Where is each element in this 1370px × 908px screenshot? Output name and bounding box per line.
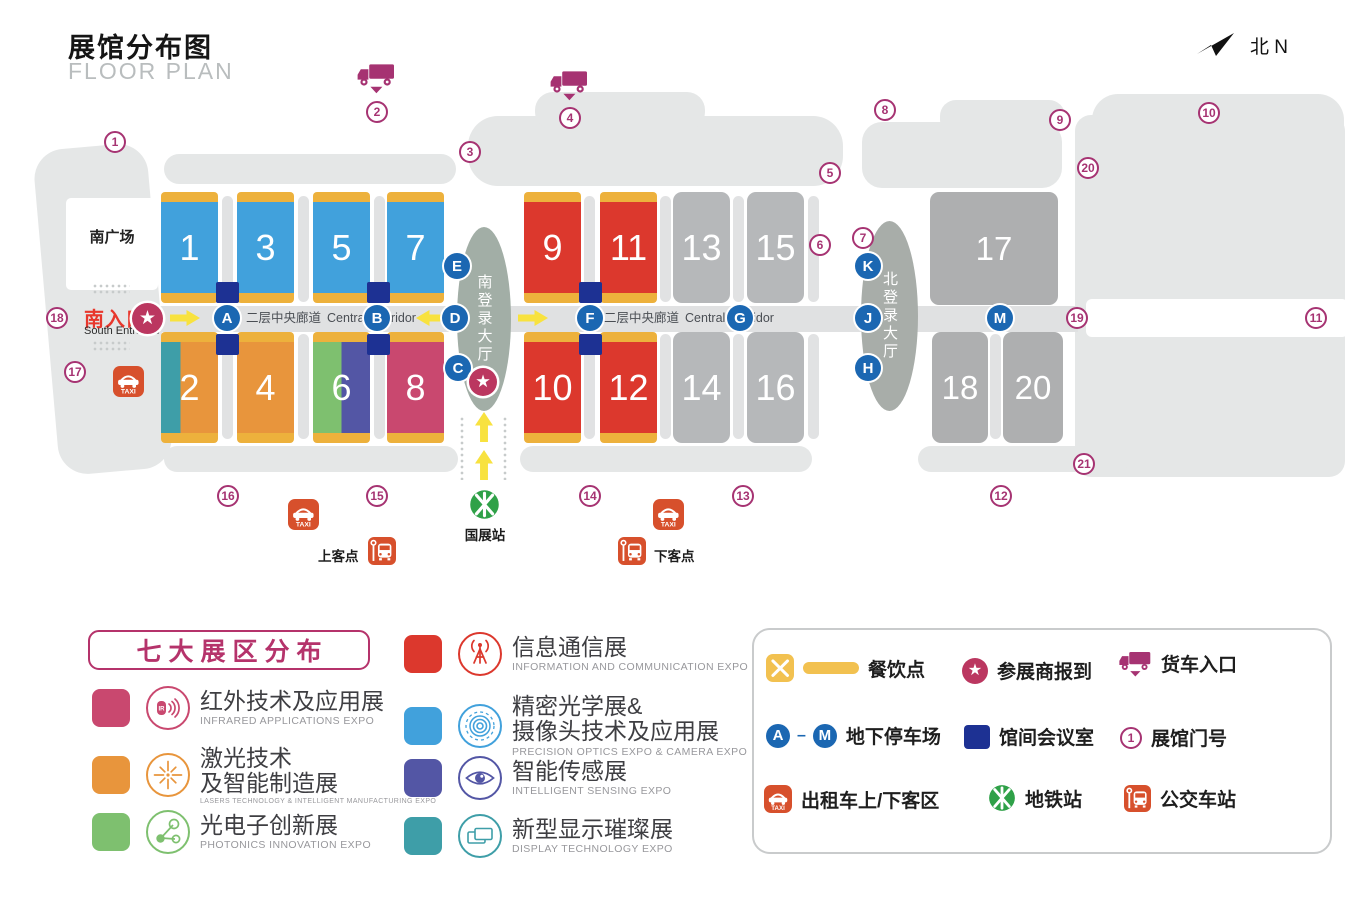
hall-2: 2	[161, 332, 218, 443]
parking-letter: B	[372, 310, 383, 327]
gate-number: 13	[736, 489, 749, 503]
parking-letter: G	[734, 310, 746, 327]
zone-legend-item-photonics: 光电子创新展 PHOTONICS INNOVATION EXPO	[92, 810, 371, 854]
parking-a-icon: A	[766, 724, 790, 748]
hall-14: 14	[673, 332, 730, 443]
dining-strip	[524, 433, 581, 443]
parking-letter: A	[222, 310, 233, 327]
facility-label: 公交车站	[1160, 785, 1236, 812]
zone-name-en: INFRARED APPLICATIONS EXPO	[200, 715, 384, 727]
zone-color-swatch	[92, 813, 130, 851]
gate-2: 2	[366, 101, 388, 123]
dining-strip	[313, 192, 370, 202]
gate-number-icon: 1	[1120, 727, 1142, 749]
hall-gap	[733, 334, 744, 439]
parking-point-D: D	[442, 305, 468, 331]
south-plaza: 南广场	[66, 198, 158, 290]
hall-3: 3	[237, 192, 294, 303]
meeting-room	[579, 334, 602, 355]
hall-gap	[298, 334, 309, 439]
parking-letter: E	[452, 258, 462, 275]
hall-11: 11	[600, 192, 657, 303]
parking-point-B: B	[364, 305, 390, 331]
gate-number: 3	[467, 145, 474, 159]
gate-4: 4	[559, 107, 581, 129]
dotted-path	[502, 416, 508, 480]
facility-legend-item-truck: 货车入口	[1118, 650, 1237, 678]
parking-letter: C	[453, 360, 464, 377]
zone-color-swatch	[404, 817, 442, 855]
hall-number: 14	[681, 367, 721, 409]
facility-label: 参展商报到	[997, 657, 1092, 684]
dining-strip	[387, 332, 444, 342]
zone-name-zh: 红外技术及应用展	[200, 689, 384, 714]
parking-point-C: C	[445, 355, 471, 381]
facility-legend-item-gate: 1展馆门号	[1120, 724, 1227, 751]
gate-number: 6	[817, 238, 824, 252]
dropoff-bus-icon	[618, 537, 646, 565]
gate-20: 20	[1077, 157, 1099, 179]
route-arrow	[518, 310, 548, 326]
metro-icon	[988, 784, 1016, 812]
hall-number: 2	[179, 367, 199, 409]
zone-legend-item-optics: 精密光学展& 摄像头技术及应用展 PRECISION OPTICS EXPO &…	[404, 694, 747, 758]
gate-number: 4	[567, 111, 574, 125]
roof-blob	[940, 100, 1065, 136]
parking-point-M: M	[987, 305, 1013, 331]
zone-name-en: INFORMATION AND COMMUNICATION EXPO	[512, 661, 748, 673]
checkin-star-icon: ★	[132, 303, 163, 334]
zone-legend-item-laser: 激光技术 及智能制造展 LASERS TECHNOLOGY & INTELLIG…	[92, 746, 436, 805]
facility-label: 馆间会议室	[999, 723, 1094, 750]
hall-1: 1	[161, 192, 218, 303]
zone-color-swatch	[92, 756, 130, 794]
metro-station-icon	[469, 489, 500, 520]
gate-number: 12	[994, 489, 1007, 503]
hall-number: 16	[755, 367, 795, 409]
hall-16: 16	[747, 332, 804, 443]
facility-label: 餐饮点	[868, 655, 925, 682]
gate-15: 15	[366, 485, 388, 507]
zone-name-en: INTELLIGENT SENSING EXPO	[512, 785, 671, 797]
corridor-label-zh: 二层中央廊道	[246, 311, 321, 325]
gate-5: 5	[819, 162, 841, 184]
facility-label: 展馆门号	[1151, 724, 1227, 751]
hall-number: 11	[610, 227, 647, 269]
taxi-icon: TAXI	[113, 366, 144, 397]
dining-strip	[524, 293, 581, 303]
taxi-icon: TAXI	[653, 499, 684, 530]
gate-6: 6	[809, 234, 831, 256]
parking-point-J: J	[855, 305, 881, 331]
taxi-icon: TAXI	[764, 785, 792, 813]
gate-17: 17	[64, 361, 86, 383]
gate-1: 1	[104, 131, 126, 153]
hall-gap	[660, 196, 671, 302]
gate-number: 21	[1077, 457, 1090, 471]
zone-color-swatch	[404, 707, 442, 745]
parking-point-A: A	[214, 305, 240, 331]
svg-text:TAXI: TAXI	[121, 389, 136, 395]
route-arrow-up	[475, 412, 493, 442]
pickup-bus-icon	[368, 537, 396, 565]
truck-entrance-icon	[549, 69, 589, 102]
dining-bar-swatch	[803, 662, 859, 674]
hall-15: 15	[747, 192, 804, 303]
gate-10: 10	[1198, 102, 1220, 124]
floor-plan-page: 展馆分布图 FLOOR PLAN 北 N 南广场 1 2 3 4 5 6 7 8…	[0, 0, 1370, 908]
dining-strip	[161, 332, 218, 342]
display-icon	[458, 814, 502, 858]
taxi-icon: TAXI	[288, 499, 319, 530]
zone-name-en: LASERS TECHNOLOGY & INTELLIGENT MANUFACT…	[200, 798, 436, 805]
parking-letter: J	[864, 310, 872, 327]
bus-stop-icon	[368, 537, 396, 565]
facility-legend-item-bus: 公交车站	[1124, 785, 1236, 812]
corridor-label-zh: 二层中央廊道	[604, 311, 679, 325]
corridor-label-south: 二层中央廊道Central Corridor	[246, 305, 416, 331]
truck-entrance-icon	[356, 62, 396, 95]
hall-gap	[990, 334, 1001, 439]
gate-8: 8	[874, 99, 896, 121]
gate-number: 8	[882, 103, 889, 117]
gate-21: 21	[1073, 453, 1095, 475]
hall-number: 3	[255, 227, 275, 269]
gate-13: 13	[732, 485, 754, 507]
hall-number: 20	[1015, 369, 1052, 407]
dining-strip	[237, 332, 294, 342]
facility-legend-item-parking: A–M地下停车场	[766, 722, 941, 749]
dining-strip	[387, 192, 444, 202]
hall-number: 10	[532, 367, 572, 409]
zone-name-en: DISPLAY TECHNOLOGY EXPO	[512, 843, 673, 855]
parking-point-K: K	[855, 253, 881, 279]
south-plaza-label: 南广场	[89, 226, 134, 290]
hall-number: 5	[331, 227, 351, 269]
gate-number: 10	[1202, 106, 1215, 120]
checkin-star-south-entrance: ★	[132, 303, 163, 334]
hall-number: 12	[608, 367, 648, 409]
facility-legend-item-checkin: ★参展商报到	[962, 657, 1092, 684]
route-arrow	[170, 310, 200, 326]
hall-number: 18	[942, 369, 979, 407]
hall-17: 17	[930, 192, 1058, 305]
gate-number: 5	[827, 166, 834, 180]
meeting-room	[367, 282, 390, 303]
gate-number: 14	[583, 489, 596, 503]
taxi-point: TAXI	[113, 366, 144, 397]
hall-4: 4	[237, 332, 294, 443]
zone-color-swatch	[92, 689, 130, 727]
floor-plan-map: 南广场 1 2 3 4 5 6 7 8 9 10 11 12 131415161…	[0, 0, 1370, 620]
gate-14: 14	[579, 485, 601, 507]
meeting-room-swatch	[964, 725, 990, 749]
photonics-icon	[146, 810, 190, 854]
gate-7: 7	[852, 227, 874, 249]
zone-legend-item-ict: 信息通信展 INFORMATION AND COMMUNICATION EXPO	[404, 632, 748, 676]
gate-12: 12	[990, 485, 1012, 507]
sensing-icon	[458, 756, 502, 800]
dining-strip	[387, 293, 444, 303]
hall-9: 9	[524, 192, 581, 303]
hall-number: 17	[976, 230, 1013, 268]
parking-point-H: H	[855, 355, 881, 381]
dining-strip	[161, 433, 218, 443]
phase-two-area	[1075, 115, 1345, 477]
dotted-path	[92, 283, 130, 296]
dining-strip	[600, 293, 657, 303]
gate-19: 19	[1066, 307, 1088, 329]
hall-gap	[733, 196, 744, 302]
facility-label: 货车入口	[1161, 650, 1237, 677]
dining-strip	[524, 332, 581, 342]
roof-blob	[164, 154, 456, 184]
hall-5: 5	[313, 192, 370, 303]
hall-gap	[660, 334, 671, 439]
zone-name-zh: 激光技术 及智能制造展	[200, 746, 436, 796]
dining-strip	[600, 332, 657, 342]
taxi-point: TAXI	[653, 499, 684, 530]
zone-name-zh: 新型显示璀璨展	[512, 817, 673, 842]
parking-point-E: E	[444, 253, 470, 279]
zone-legend-title-box: 七大展区分布	[88, 630, 370, 670]
gate-number: 15	[370, 489, 383, 503]
dining-icon	[766, 654, 794, 682]
meeting-room	[216, 334, 239, 355]
zone-name-en: PHOTONICS INNOVATION EXPO	[200, 839, 371, 851]
hall-12: 12	[600, 332, 657, 443]
parking-letter: D	[450, 310, 461, 327]
gate-number: 17	[68, 365, 81, 379]
hall-number: 13	[681, 227, 721, 269]
dining-strip	[313, 332, 370, 342]
parking-point-G: G	[727, 305, 753, 331]
bus-stop-icon	[1124, 785, 1151, 812]
hall-number: 8	[405, 367, 425, 409]
roof-blob-south	[918, 446, 1130, 472]
dining-strip	[237, 293, 294, 303]
hall-20: 20	[1003, 332, 1063, 443]
hall-6: 6	[313, 332, 370, 443]
zone-legend-item-sensing: 智能传感展 INTELLIGENT SENSING EXPO	[404, 756, 671, 800]
hall-number: 6	[331, 367, 351, 409]
ict-icon	[458, 632, 502, 676]
dotted-path	[92, 340, 130, 353]
bus-stop-icon	[618, 537, 646, 565]
gate-number: 18	[50, 311, 63, 325]
zone-name-zh: 精密光学展& 摄像头技术及应用展	[512, 694, 747, 744]
hall-7: 7	[387, 192, 444, 303]
facility-legend-item-taxi: TAXI 出租车上/下客区	[764, 785, 939, 813]
gate-number: 9	[1057, 113, 1064, 127]
svg-text:TAXI: TAXI	[296, 522, 311, 528]
facility-legend-item-dining: 餐饮点	[766, 654, 925, 682]
zone-legend-item-infrared: IR 红外技术及应用展 INFRARED APPLICATIONS EXPO	[92, 686, 384, 730]
gate-number: 2	[374, 105, 381, 119]
hall-18: 18	[932, 332, 988, 443]
dotted-path	[459, 416, 465, 480]
checkin-star-south-hall: ★	[469, 368, 497, 396]
facility-label: 地下停车场	[846, 722, 941, 749]
gate-18: 18	[46, 307, 68, 329]
zone-legend-item-display: 新型显示璀璨展 DISPLAY TECHNOLOGY EXPO	[404, 814, 673, 858]
checkin-star-icon: ★	[469, 368, 497, 396]
parking-letter: K	[863, 258, 874, 275]
roof-blob-south	[520, 446, 812, 472]
metro-station-label: 国展站	[460, 524, 510, 544]
hall-number: 4	[255, 367, 275, 409]
zone-name-zh: 光电子创新展	[200, 813, 371, 838]
hall-number: 7	[405, 227, 425, 269]
infrared-icon: IR	[146, 686, 190, 730]
meeting-room	[216, 282, 239, 303]
gate-number: 1	[112, 135, 119, 149]
checkin-star-icon: ★	[962, 658, 988, 684]
dining-strip	[600, 433, 657, 443]
parking-letter: H	[863, 360, 874, 377]
route-arrow-up	[475, 450, 493, 480]
svg-text:IR: IR	[159, 707, 166, 713]
south-hall-label: 南登录大厅	[474, 274, 495, 364]
laser-icon	[146, 753, 190, 797]
dining-strip	[313, 433, 370, 443]
hall-8: 8	[387, 332, 444, 443]
facility-legend-item-meeting: 馆间会议室	[964, 723, 1094, 750]
gate-number: 11	[1310, 311, 1323, 325]
hall-number: 1	[179, 227, 199, 269]
taxi-point: TAXI	[288, 499, 319, 530]
dining-strip	[237, 192, 294, 202]
dining-strip	[313, 293, 370, 303]
zone-color-swatch	[404, 635, 442, 673]
hall-10: 10	[524, 332, 581, 443]
gate-11: 11	[1305, 307, 1327, 329]
dining-strip	[161, 293, 218, 303]
zone-legend-title: 七大展区分布	[129, 632, 328, 668]
meeting-room	[367, 334, 390, 355]
roof-blob-south	[164, 446, 458, 472]
parking-letter: F	[585, 310, 594, 327]
parking-letter: M	[994, 310, 1007, 327]
gate-number: 7	[860, 231, 867, 245]
dining-strip	[600, 192, 657, 202]
gate-3: 3	[459, 141, 481, 163]
gate-number: 20	[1081, 161, 1094, 175]
hall-number: 9	[542, 227, 562, 269]
gate-number: 16	[221, 489, 234, 503]
facility-label: 地铁站	[1025, 785, 1082, 812]
dropoff-label: 下客点	[654, 545, 695, 565]
meeting-room	[579, 282, 602, 303]
hall-gap	[298, 196, 309, 302]
optics-icon	[458, 704, 502, 748]
svg-text:TAXI: TAXI	[661, 522, 676, 528]
gate-16: 16	[217, 485, 239, 507]
zone-name-zh: 信息通信展	[512, 635, 748, 660]
gate-number: 19	[1070, 311, 1083, 325]
facility-label: 出租车上/下客区	[801, 786, 939, 813]
hall-gap	[808, 334, 819, 439]
parking-point-F: F	[577, 305, 603, 331]
north-hall-label: 北登录大厅	[879, 271, 900, 361]
svg-text:TAXI: TAXI	[771, 805, 785, 811]
dining-strip	[524, 192, 581, 202]
zone-color-swatch	[404, 759, 442, 797]
facility-legend-item-metro: 地铁站	[988, 784, 1082, 812]
truck-icon	[1118, 650, 1152, 678]
pickup-label: 上客点	[318, 545, 359, 565]
dining-strip	[161, 192, 218, 202]
hall-13: 13	[673, 192, 730, 303]
dining-strip	[237, 433, 294, 443]
parking-m-icon: M	[813, 724, 837, 748]
gate-9: 9	[1049, 109, 1071, 131]
hall-number: 15	[755, 227, 795, 269]
dining-strip	[387, 433, 444, 443]
zone-name-zh: 智能传感展	[512, 759, 671, 784]
